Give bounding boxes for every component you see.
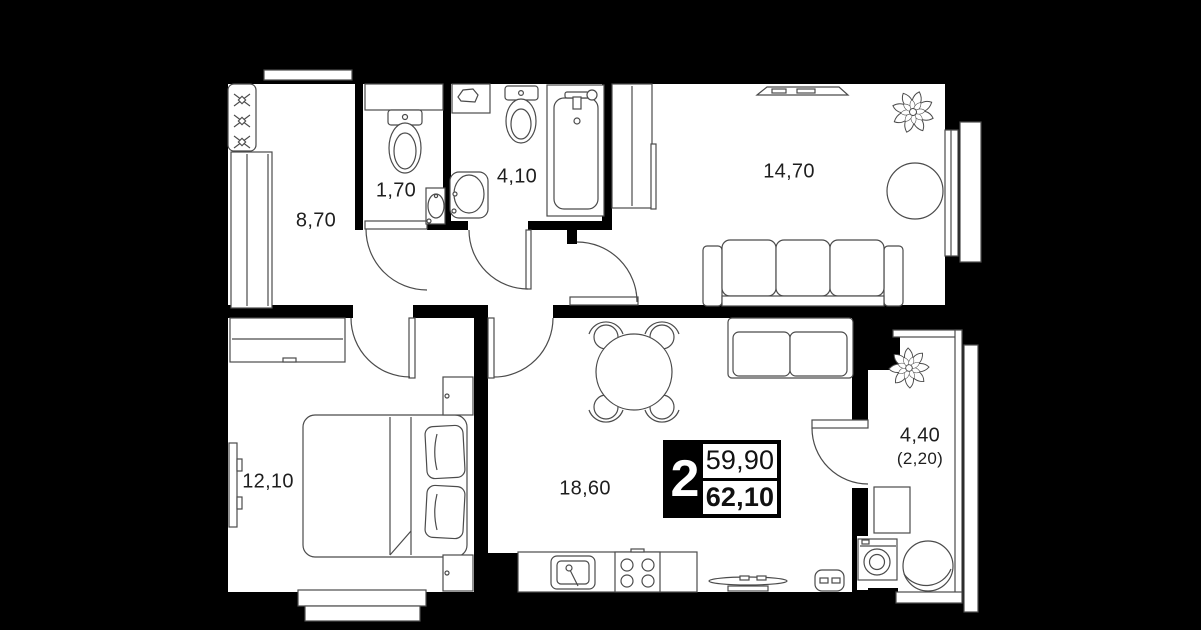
wall-kitchen-balcony-b [852,488,868,536]
sofa-cushion [776,240,830,296]
balcony-chair-icon [903,541,953,591]
bedroom-window-frame [298,590,426,606]
bedroom-door-leaf [409,318,415,378]
washer-button [862,540,869,544]
round-chair-icon [887,163,943,219]
stove-icon [615,549,660,592]
tray-detail [740,576,749,580]
sink-icon [454,175,484,213]
room-label-balcony-reduced: (2,20) [897,449,943,469]
kitchen-door-leaf [488,318,494,378]
nightstand-knob [445,394,449,398]
wall-kitchen-duct [488,553,518,592]
stove-body [615,552,660,592]
wall-east-lower [945,256,952,318]
sink-faucet [453,192,457,196]
room-label-wc: 1,70 [376,180,416,203]
kitchen-counter [518,552,697,592]
floor-plan-stage: 8,70 1,70 4,10 14,70 12,10 18,60 4,40 (2… [0,0,1201,630]
washing-machine-icon [858,539,897,580]
badge-rooms-count: 2 [667,444,703,514]
burner [642,559,654,571]
bathtub-faucet-knob [587,90,597,100]
washer-drum [870,555,885,570]
sink-faucet [434,194,437,197]
room-label-bathroom: 4,10 [497,166,537,189]
bed-icon [303,415,467,557]
tray-base [728,586,768,591]
burner [621,559,633,571]
sofa-cushion [733,332,790,376]
pillow-icon [425,425,466,479]
toilet-bowl-inner [394,133,416,169]
floor-plan-svg [0,0,1201,630]
bathtub-faucet-stem [573,97,581,109]
desk-detail [283,358,296,362]
kitchen-sink-icon [551,556,595,589]
bathroom-door-leaf [526,230,531,289]
sink-drain [452,209,456,213]
bathtub-inner [554,98,598,209]
badge-area-total: 62,10 [703,481,777,515]
burner [642,575,654,587]
room-label-living-room: 14,70 [763,161,815,184]
toilet-bowl-inner [511,109,531,139]
wall-wc-west [355,84,363,230]
wall-left [210,68,228,600]
badge-areas: 59,90 62,10 [703,444,777,514]
sofa-icon [703,240,903,306]
bathtub-drain [574,118,580,124]
sofa-cushion [722,240,776,296]
room-label-kitchen: 18,60 [559,478,611,501]
wall-bedroom-kitchen-divider [474,318,488,592]
toilet-button [519,91,524,96]
tv-console-detail [797,89,815,93]
balcony-door-leaf [812,420,868,428]
balcony-window-east [955,330,962,600]
entrance-door [264,70,352,80]
dining-set [589,322,679,422]
toilet-button [403,115,408,120]
dining-table-icon [596,334,672,410]
sofa-arm [703,246,722,306]
wall-mid-lower-b [413,305,488,318]
balcony-table-icon [874,487,910,533]
sofa-arm [884,246,903,306]
sink-drain [427,219,431,223]
sofa-cushion [790,332,847,376]
sink-faucet-head [566,565,572,571]
desk-icon [230,318,345,362]
tv-bracket [237,459,242,471]
sofa-cushion [830,240,884,296]
pillow-icon [425,485,466,539]
burner [621,575,633,587]
tray-detail [757,576,766,580]
sofa-base [722,296,884,306]
wall-entry-jamb [567,230,577,244]
living-door-leaf [570,297,638,305]
wardrobe-open-door [651,144,656,209]
room-label-bedroom: 12,10 [242,471,294,494]
toaster-slot [820,578,828,583]
kitchen-sofa-icon [728,318,853,378]
room-label-balcony: 4,40 [900,425,940,448]
wall-kitchen-balcony-a [852,370,868,428]
living-window-sill [960,122,981,262]
toaster-slot [832,578,840,583]
badge-area-living: 59,90 [703,444,777,481]
wc-shelf-icon [365,84,443,110]
apartment-badge: 2 59,90 62,10 [663,440,781,518]
tv-icon [229,443,237,527]
stove-handle [631,549,644,552]
balcony-window-bottom [896,592,962,603]
room-label-hallway: 8,70 [296,210,336,233]
tv-console-detail [772,89,786,93]
balcony-window-top [893,330,962,337]
sink-inner [557,561,589,584]
tv-bracket [237,497,242,509]
balcony-window-sill [964,345,978,612]
wall-mid-upper-b [528,221,612,230]
nightstand-knob [445,571,449,575]
wardrobe-icon [231,152,272,308]
wall-niche-west [852,536,857,592]
wall-balcony-bottom [852,588,898,606]
bedroom-window-sill [305,606,420,621]
wall-east-upper [945,68,952,130]
wc-door-slab [365,221,427,229]
